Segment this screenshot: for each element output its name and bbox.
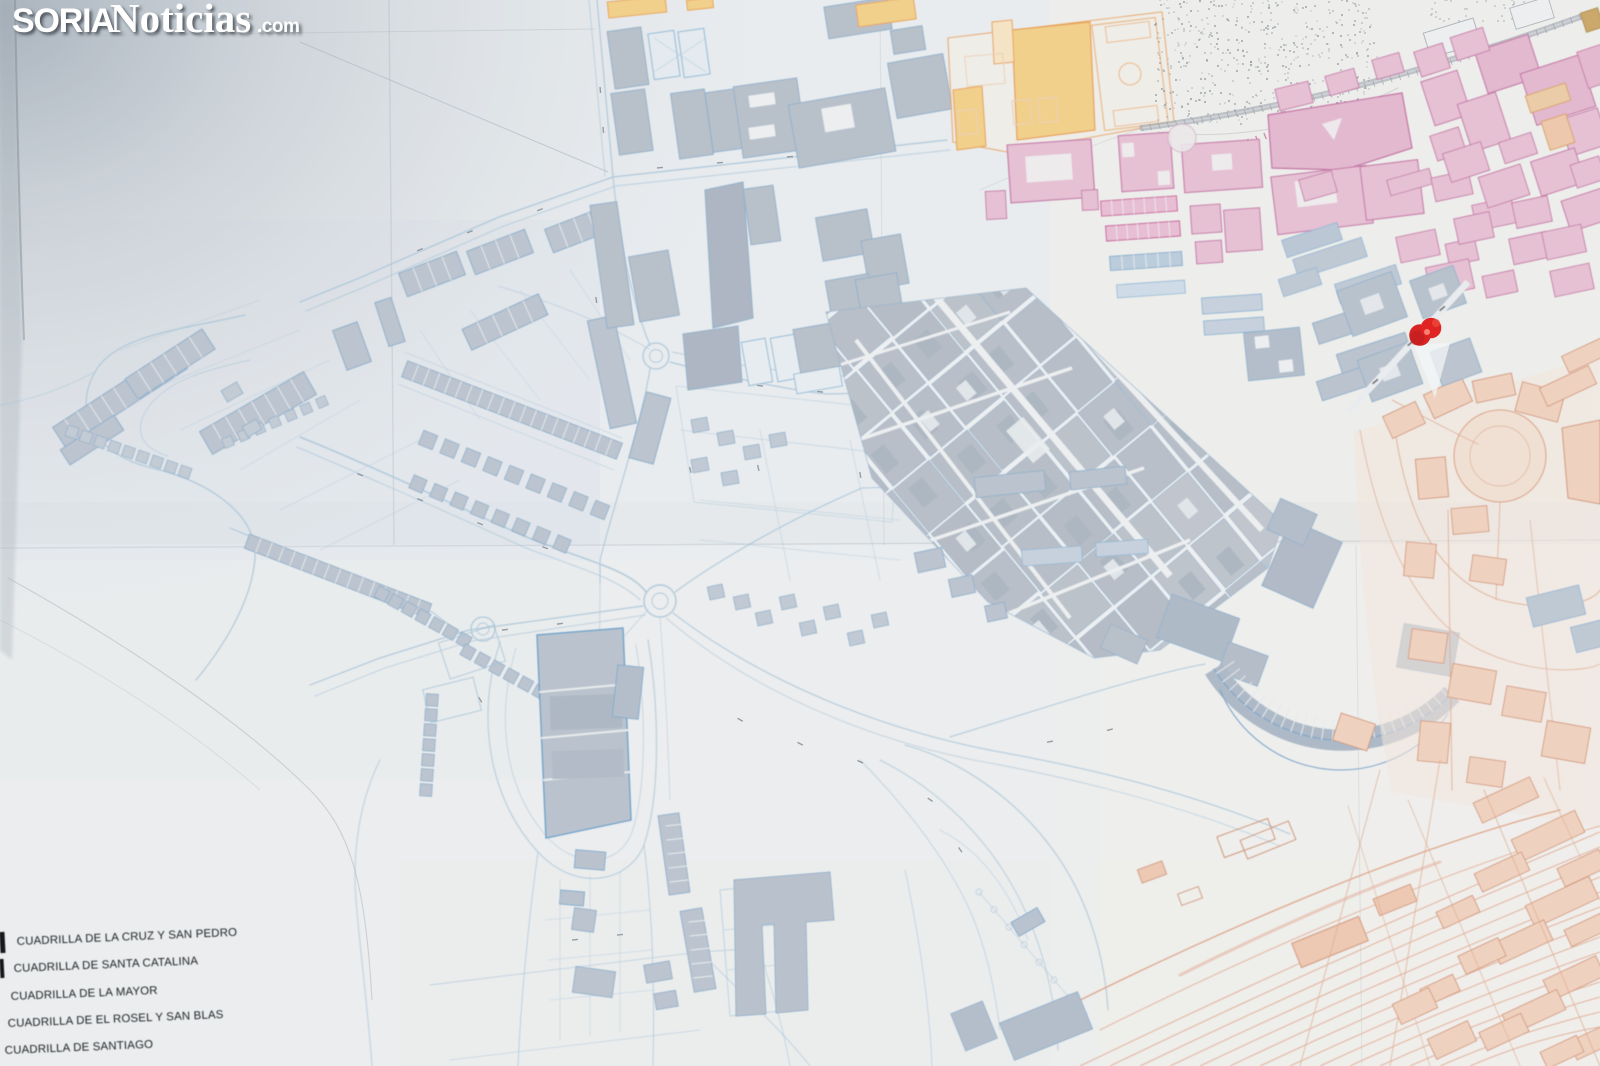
svg-text:SORIA: SORIA	[12, 2, 114, 40]
svg-text:.com: .com	[257, 16, 299, 37]
svg-text:Noticias: Noticias	[110, 0, 251, 41]
